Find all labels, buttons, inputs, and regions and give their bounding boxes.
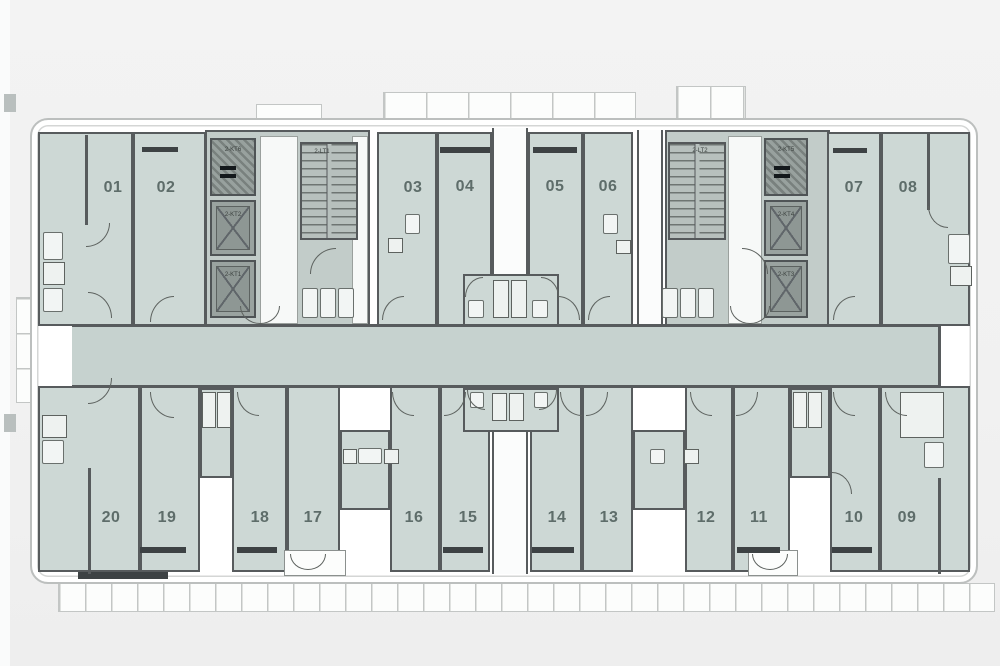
window-bar-icon xyxy=(443,547,483,553)
lift-label: 2-KT2 xyxy=(225,212,241,218)
staircase-left xyxy=(300,142,358,240)
window-bar-icon xyxy=(533,147,577,153)
x-shaft-icon xyxy=(509,393,524,421)
central-shaft-bottom xyxy=(492,432,528,574)
unit-label-16: 16 xyxy=(405,509,424,527)
unit-room xyxy=(287,386,340,572)
unit-label-08: 08 xyxy=(899,179,918,197)
lightwell-right-of-06 xyxy=(637,130,663,324)
bath-fixture-icon xyxy=(532,300,548,318)
stair-label-left: 2-LT1 xyxy=(314,149,329,155)
lift-lobby-right xyxy=(728,136,762,324)
floor-plan-drawing: 01 02 03 04 05 06 07 08 20 19 18 17 16 1… xyxy=(0,0,1000,666)
window-bar-icon xyxy=(832,547,872,553)
lift-lobby-left xyxy=(260,136,298,324)
bath-fixture-icon xyxy=(680,288,696,318)
unit-label-11: 11 xyxy=(750,509,768,527)
bath-fixture-icon xyxy=(405,214,420,234)
elevator-shaft xyxy=(764,260,808,318)
partition-wall xyxy=(938,324,941,388)
edge-artifact xyxy=(4,414,16,432)
unit-label-14: 14 xyxy=(548,509,567,527)
bath-fixture-icon xyxy=(320,288,336,318)
bath-cluster xyxy=(633,430,685,510)
unit-label-18: 18 xyxy=(251,509,270,527)
elevator-shaft xyxy=(764,200,808,256)
window-bar-icon xyxy=(140,547,186,553)
x-shaft-icon xyxy=(492,393,507,421)
lift-label: 2-KT4 xyxy=(778,212,794,218)
unit-label-05: 05 xyxy=(546,178,565,196)
duct-bar-icon xyxy=(220,174,236,178)
unit-label-09: 09 xyxy=(898,509,917,527)
unit-label-13: 13 xyxy=(600,509,619,527)
unit-label-15: 15 xyxy=(459,509,478,527)
unit-label-10: 10 xyxy=(845,509,864,527)
partition-wall xyxy=(938,478,941,574)
x-shaft-icon xyxy=(343,449,357,464)
partition-wall xyxy=(88,468,91,574)
central-corridor xyxy=(72,324,940,388)
x-shaft-icon xyxy=(384,449,399,464)
floor-plan-page: 01 02 03 04 05 06 07 08 20 19 18 17 16 1… xyxy=(0,0,1000,666)
window-bar-icon xyxy=(142,147,178,152)
stair-label-right: 2-LT2 xyxy=(692,148,707,154)
unit-room xyxy=(881,132,970,326)
balcony-bottom-strip xyxy=(58,583,995,612)
partition-wall xyxy=(927,132,930,210)
unit-label-19: 19 xyxy=(158,509,177,527)
partition-wall xyxy=(85,135,88,225)
x-shaft-icon xyxy=(43,262,65,285)
x-shaft-icon xyxy=(684,449,699,464)
x-shaft-icon xyxy=(388,238,403,253)
unit-label-03: 03 xyxy=(404,179,423,197)
bath-fixture-icon xyxy=(43,288,63,312)
window-bar-icon xyxy=(237,547,277,553)
bath-fixture-icon xyxy=(650,449,665,464)
bath-fixture-icon xyxy=(338,288,354,318)
bath-fixture-icon xyxy=(358,448,382,464)
unit-label-07: 07 xyxy=(845,179,864,197)
unit-label-06: 06 xyxy=(599,178,618,196)
unit-label-04: 04 xyxy=(456,178,475,196)
unit-room xyxy=(232,386,287,572)
unit-label-02: 02 xyxy=(157,179,176,197)
bath-fixture-icon xyxy=(662,288,678,318)
x-shaft-icon xyxy=(793,392,807,428)
x-shaft-icon xyxy=(202,392,216,428)
lift-label: 2-KT3 xyxy=(778,272,794,278)
bath-fixture-icon xyxy=(43,232,63,260)
window-bar-icon xyxy=(737,547,780,553)
x-shaft-icon xyxy=(511,280,527,318)
duct-bar-icon xyxy=(220,166,236,170)
x-shaft-icon xyxy=(493,280,509,318)
window-bar-icon xyxy=(833,148,867,153)
x-shaft-icon xyxy=(42,415,67,438)
bath-fixture-icon xyxy=(603,214,618,234)
x-shaft-icon xyxy=(950,266,972,286)
lift-label: 2-KT1 xyxy=(225,272,241,278)
unit-room xyxy=(390,386,440,572)
lift-machine-label-right: 2-KT5 xyxy=(778,147,794,153)
x-shaft-icon xyxy=(808,392,822,428)
unit-label-20: 20 xyxy=(102,509,121,527)
x-shaft-icon xyxy=(616,240,631,254)
staircase-right xyxy=(668,142,726,240)
window-bar-icon xyxy=(532,547,574,553)
bath-fixture-icon xyxy=(42,440,64,464)
central-shaft-top xyxy=(492,128,528,276)
duct-bar-icon xyxy=(774,174,790,178)
bath-fixture-icon xyxy=(698,288,714,318)
bath-fixture-icon xyxy=(468,300,484,318)
unit-label-12: 12 xyxy=(697,509,716,527)
bath-cluster xyxy=(340,430,390,510)
elevator-shaft xyxy=(210,200,256,256)
window-bar-icon xyxy=(78,572,168,579)
lift-machine-label-left: 2-KT6 xyxy=(225,147,241,153)
bath-fixture-icon xyxy=(948,234,970,264)
bath-fixture-icon xyxy=(924,442,944,468)
duct-bar-icon xyxy=(774,166,790,170)
bath-fixture-icon xyxy=(302,288,318,318)
edge-artifact xyxy=(4,94,16,112)
unit-label-01: 01 xyxy=(104,179,123,197)
unit-label-17: 17 xyxy=(304,509,323,527)
x-shaft-icon xyxy=(217,392,231,428)
window-bar-icon xyxy=(440,147,490,153)
